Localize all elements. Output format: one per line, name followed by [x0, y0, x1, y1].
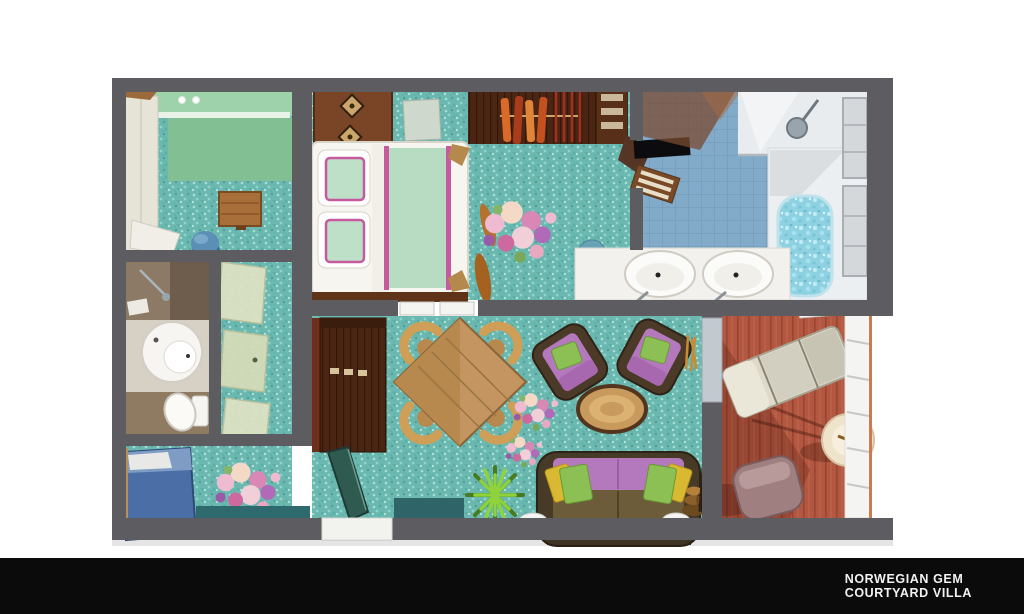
sliding-door-panel-1 — [400, 302, 434, 315]
lobby-window-band — [196, 506, 310, 518]
ship-name: NORWEGIAN GEM — [845, 572, 972, 586]
potted-plant — [467, 467, 523, 523]
sofa-pillow-green-right — [643, 464, 677, 504]
wall-bottom-right — [392, 518, 893, 540]
cabinet-side — [312, 318, 320, 452]
wall-bath-small-right — [209, 250, 221, 446]
wall-balcony-top — [702, 300, 722, 318]
coffee-table — [578, 386, 646, 432]
glass-door-panels — [218, 262, 270, 444]
bed-blanket — [389, 148, 446, 288]
balcony-railing — [845, 312, 872, 518]
wall-right-top — [867, 78, 893, 316]
sliding-door-panel-2 — [440, 302, 474, 315]
luggage-bench — [403, 99, 441, 141]
caption-bar: NORWEGIAN GEM COURTYARD VILLA — [0, 558, 1024, 614]
sliding-door-panels — [400, 302, 474, 315]
wall-bathroom-upper — [630, 78, 643, 140]
towel-shelf — [597, 86, 627, 144]
wall-left — [112, 78, 126, 540]
pillow-2 — [318, 212, 370, 268]
ceiling-light-1 — [179, 97, 186, 104]
wardrobe — [468, 84, 628, 144]
cabinet-handle-2 — [344, 369, 353, 375]
pillow-1 — [318, 150, 370, 206]
kids-desk — [219, 192, 261, 230]
entry-mat — [394, 498, 464, 518]
wall-bottom-left — [112, 518, 322, 540]
blanket-trim-left — [384, 146, 389, 290]
wall-bathroom-lower — [630, 188, 643, 250]
caption: NORWEGIAN GEM COURTYARD VILLA — [845, 572, 972, 600]
cabinet-handle-1 — [330, 368, 339, 374]
cabin-type: COURTYARD VILLA — [845, 586, 972, 600]
ceiling-light-2 — [193, 97, 200, 104]
window-right-2 — [843, 186, 867, 276]
mint-wall-block — [168, 118, 292, 181]
wall-top — [112, 78, 893, 92]
sofa-pillow-green-left — [559, 464, 593, 504]
plan-shadow — [112, 540, 893, 546]
media-cabinet — [320, 318, 386, 452]
vanity-counter — [575, 248, 790, 302]
screenshot-root: NORWEGIAN GEM COURTYARD VILLA — [0, 0, 1024, 614]
shower-head-small — [162, 293, 170, 301]
window-right-1 — [843, 98, 867, 178]
wall-mid-right — [478, 300, 893, 316]
washbasin — [142, 322, 202, 382]
blanket-trim-right — [446, 146, 451, 290]
balcony-glass-door — [702, 318, 722, 402]
double-bed — [312, 142, 470, 295]
cabinet-handle-3 — [358, 370, 367, 376]
entrance-threshold — [322, 518, 392, 540]
railing-trim — [869, 312, 872, 518]
floor-plan — [0, 0, 1024, 558]
nightstand — [314, 86, 392, 148]
shower-head — [787, 118, 807, 138]
shower-tray-shadow — [170, 262, 209, 320]
wall-left-column — [292, 78, 312, 446]
wall-balcony-bottom — [702, 402, 722, 540]
